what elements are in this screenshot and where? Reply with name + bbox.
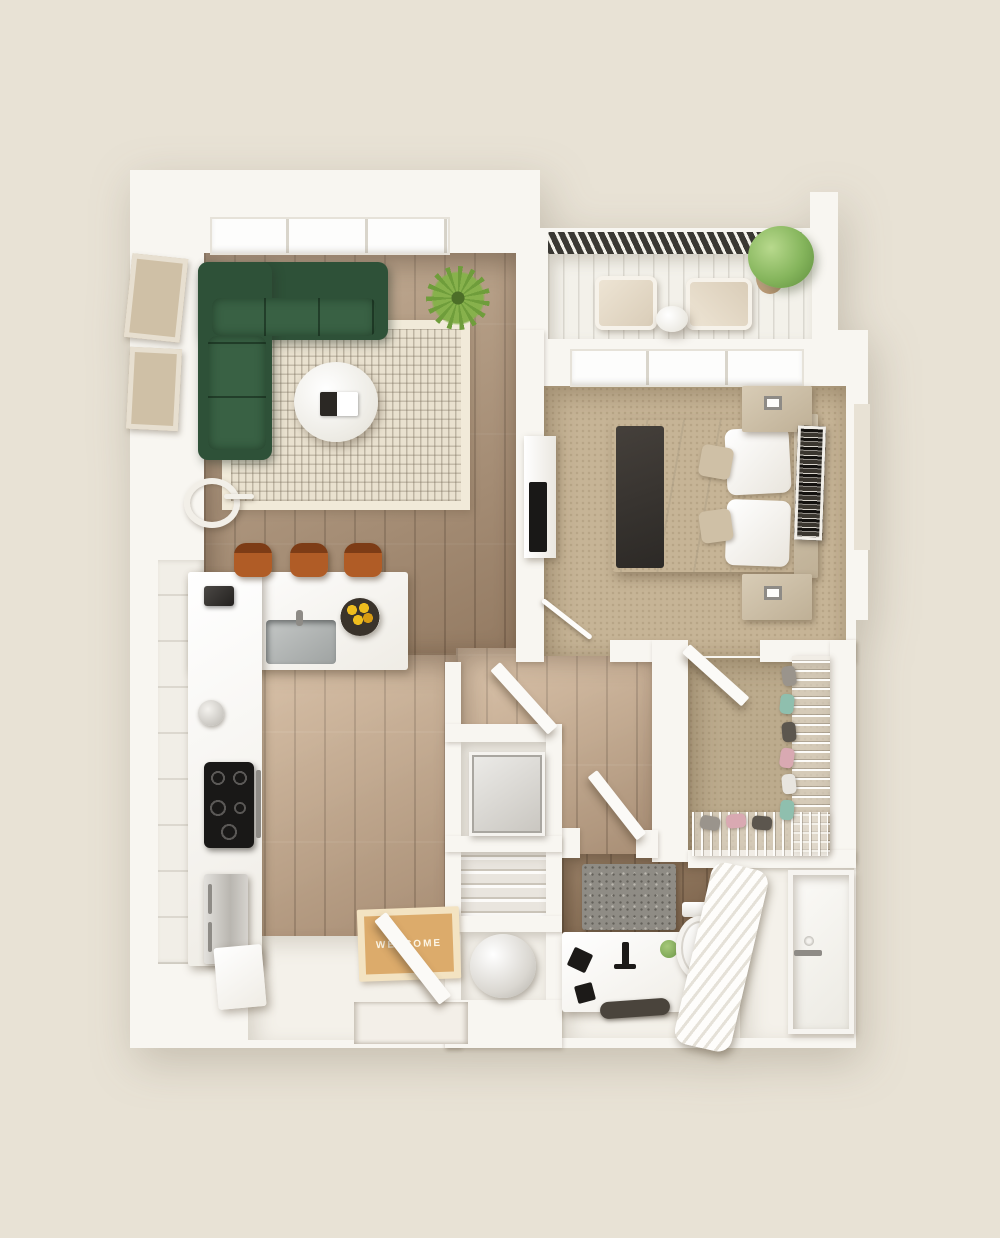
nightstand-photo-frame [764, 586, 782, 600]
refrigerator-handle [208, 922, 212, 952]
bedroom-window [570, 349, 804, 387]
fruit-bowl [340, 598, 380, 636]
bar-stool [234, 543, 272, 577]
stand-mixer [198, 700, 224, 726]
accent-pillow [697, 443, 734, 480]
wall-art-frame [126, 347, 182, 432]
living-room-window [210, 217, 450, 255]
water-heater [470, 934, 536, 998]
shoe [781, 721, 797, 742]
floor-lamp-arm [224, 494, 254, 499]
refrigerator-handle [208, 884, 212, 914]
wall [610, 640, 652, 662]
lounge-chair [595, 276, 657, 330]
kitchen-sink [266, 620, 336, 664]
wall-block-balcony-column [810, 192, 838, 342]
wall [445, 836, 562, 852]
floor-lamp [184, 478, 240, 528]
magazine [320, 392, 358, 416]
wall [830, 640, 856, 862]
throw-blanket [616, 426, 664, 568]
shoe [781, 773, 797, 794]
coffee-maker [204, 586, 234, 606]
shoe [781, 665, 798, 687]
floor-plan: WELCOME [0, 0, 1000, 1238]
oven-handle [256, 770, 261, 838]
washer [469, 752, 545, 836]
wall-niche [854, 404, 870, 550]
sofa-seat-cushions [212, 298, 376, 336]
bedroom-wall-art [794, 426, 826, 541]
lounge-chair [686, 278, 752, 330]
wall-art-frame [124, 253, 188, 342]
shoe [725, 813, 746, 829]
houseplant [426, 266, 490, 330]
bath-mat [582, 864, 676, 930]
tv [529, 482, 547, 552]
wall [652, 640, 688, 862]
balcony-plant [748, 226, 814, 288]
bar-stool [344, 543, 382, 577]
balcony-side-table [656, 306, 688, 332]
kitchen-faucet [296, 610, 303, 626]
tub-faucet-knob [804, 936, 814, 946]
entry-threshold [354, 1002, 468, 1044]
shoe [779, 693, 795, 714]
accent-pillow [698, 508, 734, 544]
vanity-faucet-handle [614, 964, 636, 969]
shoe [751, 815, 772, 831]
base-cabinet [213, 944, 266, 1010]
cooktop [204, 762, 254, 848]
nightstand-photo-frame [764, 396, 782, 410]
sofa-chaise-cushions [208, 336, 266, 450]
scene: { "scene": { "description": "3D top-down… [0, 0, 1000, 1238]
wall [546, 724, 562, 1016]
wall [445, 916, 562, 932]
linen-closet-shelves [461, 852, 546, 916]
vanity-faucet [622, 942, 629, 966]
pillow [725, 499, 791, 567]
tub-faucet [794, 950, 822, 956]
pillow [724, 426, 791, 495]
shoe [779, 800, 794, 821]
bar-stool [290, 543, 328, 577]
